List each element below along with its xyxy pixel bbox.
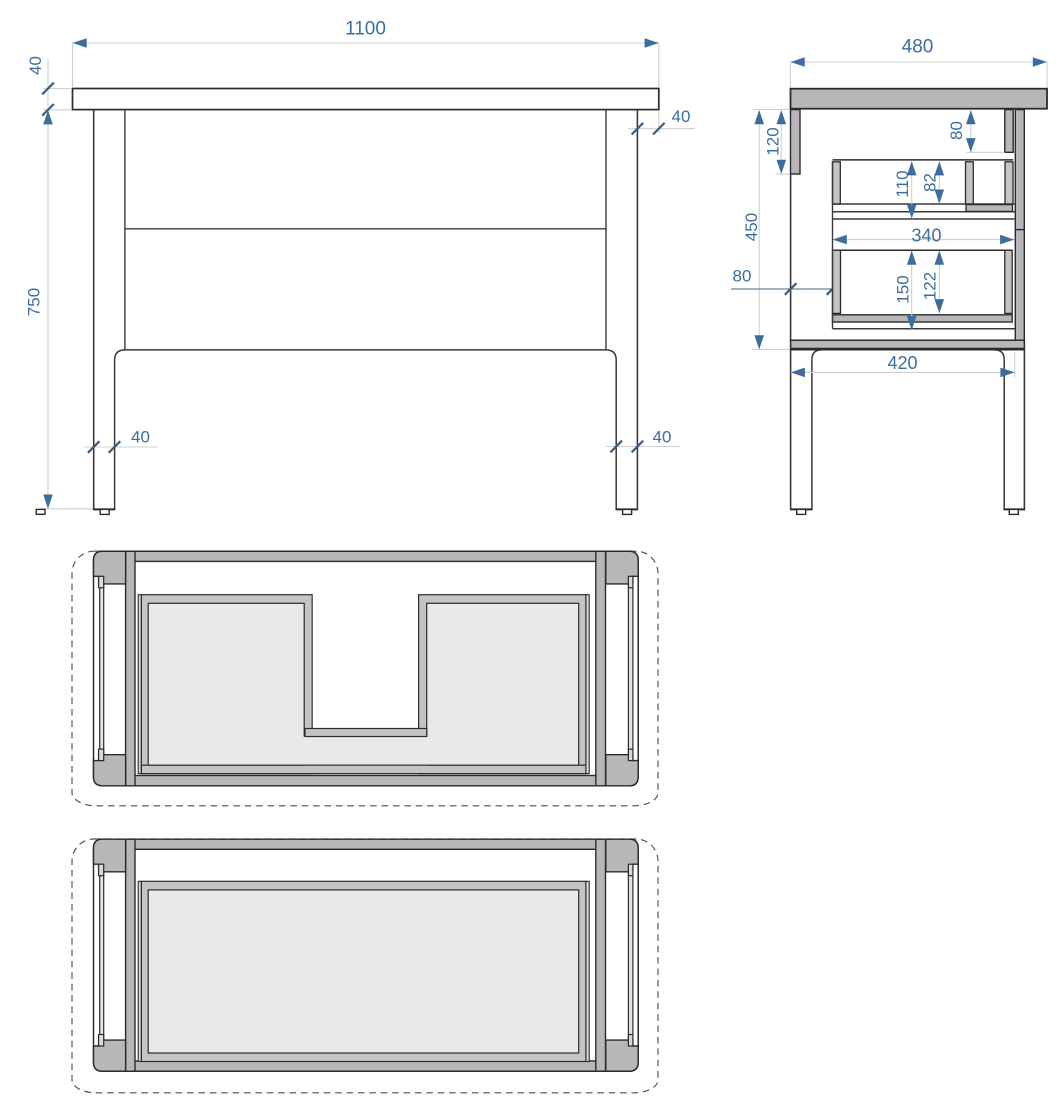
svg-text:80: 80 (947, 121, 966, 140)
svg-text:40: 40 (653, 427, 672, 446)
svg-text:420: 420 (887, 353, 917, 373)
svg-text:1100: 1100 (345, 19, 386, 40)
svg-text:450: 450 (742, 213, 761, 241)
svg-text:80: 80 (733, 267, 752, 286)
svg-text:122: 122 (920, 272, 939, 300)
svg-text:110: 110 (893, 170, 912, 197)
svg-text:82: 82 (920, 173, 939, 192)
svg-text:750: 750 (25, 288, 44, 316)
svg-text:150: 150 (894, 275, 913, 303)
svg-text:40: 40 (672, 107, 691, 126)
svg-text:40: 40 (26, 56, 45, 75)
svg-text:480: 480 (902, 37, 934, 58)
svg-text:340: 340 (911, 225, 941, 245)
svg-text:120: 120 (764, 127, 783, 155)
svg-text:40: 40 (131, 427, 150, 446)
